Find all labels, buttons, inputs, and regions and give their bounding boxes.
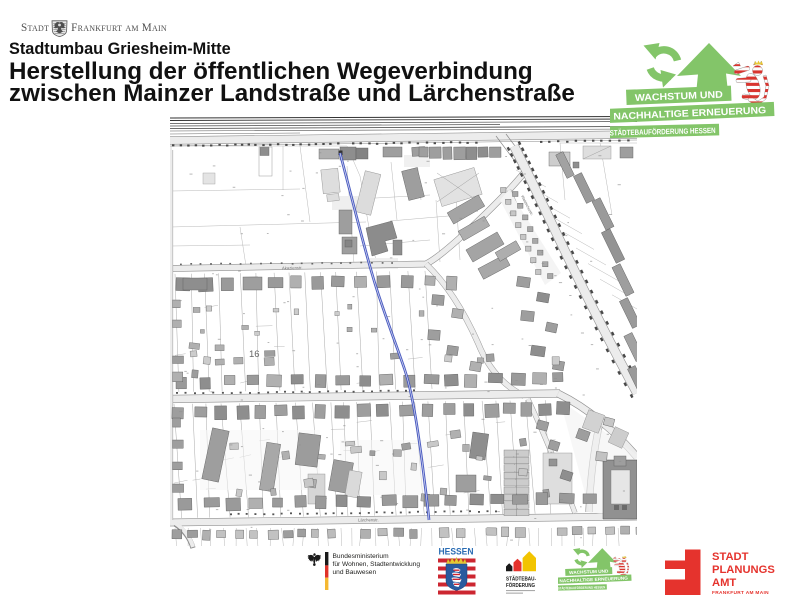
svg-text:Lärchenstr.: Lärchenstr. <box>358 517 379 522</box>
svg-text:STÄDTEBAU-: STÄDTEBAU- <box>506 576 536 583</box>
svg-text:FRANKFURT AM MAIN: FRANKFURT AM MAIN <box>712 590 769 596</box>
svg-text:HESSEN: HESSEN <box>439 547 474 557</box>
svg-text:FÖRDERUNG: FÖRDERUNG <box>506 582 535 589</box>
svg-text:für Wohnen, Stadtentwicklung: für Wohnen, Stadtentwicklung <box>333 561 421 568</box>
svg-text:Bundesministerium: Bundesministerium <box>333 553 390 560</box>
svg-text:16: 16 <box>249 349 260 360</box>
svg-text:AMT: AMT <box>712 577 736 589</box>
svg-text:STADT: STADT <box>712 551 749 563</box>
svg-text:PLANUNGS: PLANUNGS <box>712 564 775 576</box>
svg-text:Akazienstr.: Akazienstr. <box>282 265 303 270</box>
svg-text:und Bauwesen: und Bauwesen <box>333 569 377 576</box>
